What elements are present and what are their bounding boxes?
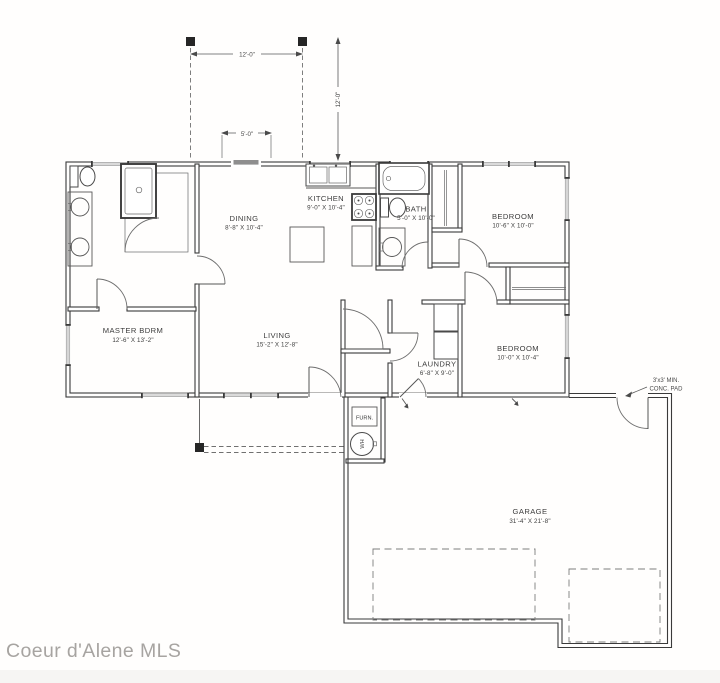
porch-width-dimension: 12'-0" bbox=[190, 52, 303, 59]
porch-depth-dimension: 12'-0" bbox=[335, 37, 342, 161]
label-dining-dims: 8'-8" X 10'-4" bbox=[225, 225, 263, 232]
window-bedroom-right bbox=[564, 314, 569, 359]
toilet-bowl bbox=[80, 167, 95, 186]
conc-pad-note-line2: CONC. PAD bbox=[650, 387, 684, 393]
label-living-name: LIVING bbox=[263, 331, 290, 340]
entry-width-dimension: 5'-0" bbox=[221, 131, 272, 159]
toilet-tank bbox=[70, 166, 78, 187]
label-living-dims: 15'-2" X 12'-8" bbox=[256, 342, 297, 349]
label-master-bdrm-name: MASTER BDRM bbox=[103, 326, 164, 335]
refrigerator bbox=[352, 226, 372, 266]
label-garage-dims: 31'-4" X 21'-8" bbox=[509, 518, 550, 525]
kitchen-island bbox=[290, 227, 324, 262]
closet-rods bbox=[445, 170, 567, 290]
porch: 12'-0" 12'-0" 5'-0" bbox=[186, 37, 342, 161]
sink-basin bbox=[71, 198, 89, 216]
window-bedroom-top-right bbox=[564, 177, 569, 221]
floor-plan-image: 12'-0" 12'-0" 5'-0" bbox=[0, 0, 720, 683]
garage-door-opening-left bbox=[373, 549, 535, 620]
porch-post-left bbox=[186, 37, 195, 46]
conc-pad-note: 3'x3' MIN. CONC. PAD bbox=[625, 378, 683, 398]
porch-width-label: 12'-0" bbox=[239, 52, 255, 59]
garage-door-opening-right bbox=[569, 569, 660, 642]
window-master-bedroom bbox=[141, 393, 189, 398]
floor-plan-svg: 12'-0" 12'-0" 5'-0" bbox=[0, 0, 720, 683]
label-kitchen-dims: 9'-0" X 10'-4" bbox=[307, 205, 345, 212]
furnace-closet: FURN. WH bbox=[346, 398, 385, 463]
sink-basin bbox=[383, 238, 402, 257]
patio-post bbox=[195, 443, 204, 452]
label-bedroom-top-name: BEDROOM bbox=[492, 212, 534, 221]
label-master-bdrm-dims: 12'-6" X 13'-2" bbox=[112, 337, 153, 344]
front-door-threshold bbox=[234, 160, 259, 165]
master-bath-fixtures bbox=[68, 164, 188, 266]
label-laundry-name: LAUNDRY bbox=[418, 360, 457, 369]
label-garage-name: GARAGE bbox=[513, 507, 548, 516]
porch-post-right bbox=[298, 37, 307, 46]
porch-outline-dashed bbox=[191, 48, 303, 160]
front-door bbox=[231, 160, 261, 167]
water-heater-label: WH bbox=[360, 439, 366, 448]
conc-pad-note-line1: 3'x3' MIN. bbox=[653, 378, 680, 384]
toilet-tank bbox=[381, 198, 389, 217]
window-bedroom-top bbox=[482, 161, 536, 167]
shower-stall bbox=[121, 164, 156, 218]
watermark: Coeur d'Alene MLS bbox=[6, 640, 181, 663]
window-living bbox=[223, 393, 279, 398]
label-bath-dims: 5'-0" X 10'-0" bbox=[397, 215, 435, 222]
patio-door-opening bbox=[308, 393, 342, 398]
window-master-bedroom-left bbox=[65, 324, 70, 366]
kitchen-fixtures bbox=[290, 164, 376, 266]
label-bedroom-right-dims: 10'-0" X 10'-4" bbox=[497, 355, 538, 362]
furnace-label: FURN. bbox=[356, 416, 374, 422]
room-labels: MASTER BDRM 12'-6" X 13'-2" DINING 8'-8"… bbox=[103, 194, 551, 525]
label-bedroom-top-dims: 10'-6" X 10'-0" bbox=[492, 223, 533, 230]
label-bedroom-right-name: BEDROOM bbox=[497, 344, 539, 353]
label-bath-name: BATH bbox=[405, 205, 426, 214]
label-laundry-dims: 6'-8" X 9'-0" bbox=[420, 370, 454, 377]
bottom-band bbox=[0, 670, 720, 683]
washer bbox=[434, 304, 458, 331]
porch-depth-label: 12'-0" bbox=[335, 92, 342, 108]
patio bbox=[195, 399, 344, 453]
dryer bbox=[434, 332, 458, 359]
laundry-fixtures bbox=[434, 304, 458, 359]
label-dining-name: DINING bbox=[230, 214, 259, 223]
label-kitchen-name: KITCHEN bbox=[308, 194, 344, 203]
sink-basin bbox=[71, 238, 89, 256]
entry-width-label: 5'-0" bbox=[241, 131, 253, 138]
